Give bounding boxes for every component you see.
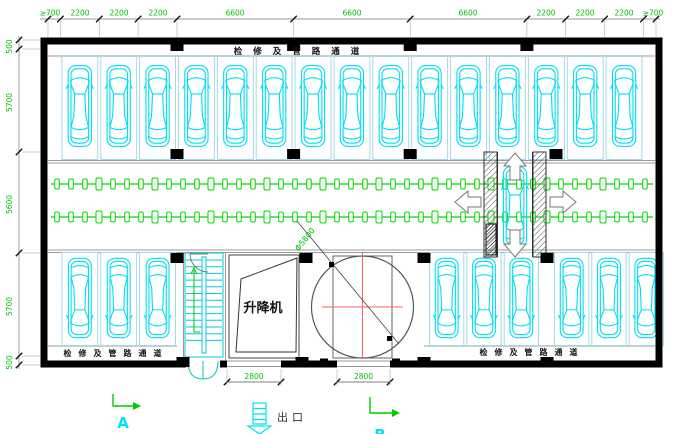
dimension-label: ≥700 bbox=[40, 9, 61, 18]
conveyor-roller-icon bbox=[320, 178, 326, 190]
conveyor-roller-icon bbox=[111, 212, 116, 222]
conveyor-roller-icon bbox=[264, 178, 270, 190]
conveyor-roller-icon bbox=[139, 212, 144, 222]
car-icon bbox=[455, 66, 482, 147]
conveyor-roller-icon bbox=[447, 179, 452, 189]
car-icon bbox=[144, 258, 170, 337]
floor-plan-canvas: ≥700220022002200660066006600220022002200… bbox=[0, 0, 700, 434]
car-icon bbox=[572, 66, 599, 147]
conveyor-roller-icon bbox=[405, 212, 410, 222]
conveyor-roller-icon bbox=[83, 212, 88, 222]
conveyor-roller-icon bbox=[475, 212, 480, 222]
corridor-label-top: 检修及管路通道 bbox=[234, 46, 371, 57]
conveyor-roller-icon bbox=[376, 178, 382, 190]
dimension-label: 5700 bbox=[5, 297, 14, 316]
conveyor-roller-icon bbox=[349, 179, 354, 189]
car-icon bbox=[300, 66, 327, 147]
column bbox=[541, 357, 554, 367]
exit-label: 出口 bbox=[277, 410, 307, 424]
conveyor-roller-icon bbox=[432, 211, 438, 223]
dimension-label: 2800 bbox=[354, 372, 373, 381]
dimension-label: 500 bbox=[5, 39, 14, 54]
dimension-label: ≥700 bbox=[643, 9, 664, 18]
parking-stall bbox=[62, 253, 98, 346]
conveyor-roller-icon bbox=[125, 179, 130, 189]
car-icon bbox=[105, 66, 132, 147]
corridor-label-bottom-left: 检修及管路通道 bbox=[64, 348, 169, 358]
parking-stall bbox=[334, 57, 370, 160]
car-icon bbox=[261, 66, 288, 147]
column bbox=[520, 41, 533, 51]
car-icon bbox=[144, 66, 171, 147]
conveyor-roller-icon bbox=[279, 212, 284, 222]
conveyor-roller-icon bbox=[111, 179, 116, 189]
parking-stall bbox=[179, 57, 215, 160]
conveyor-roller-icon bbox=[96, 178, 102, 190]
car-icon bbox=[222, 66, 249, 147]
dimension-label: 2800 bbox=[244, 372, 263, 381]
parking-stall bbox=[567, 57, 603, 160]
car-lift-shaft bbox=[455, 152, 576, 257]
column bbox=[320, 359, 328, 366]
conveyor-roller-icon bbox=[419, 212, 424, 222]
dimension-label: 2200 bbox=[536, 9, 555, 18]
conveyor-roller-icon bbox=[643, 212, 648, 222]
parking-stall bbox=[62, 57, 98, 160]
exit-icon bbox=[248, 403, 271, 434]
conveyor-roller-icon bbox=[391, 212, 396, 222]
conveyor-roller-icon bbox=[55, 212, 60, 222]
conveyor-roller-icon bbox=[600, 211, 606, 223]
dimension-label: 2200 bbox=[70, 9, 89, 18]
conveyor-roller-icon bbox=[139, 179, 144, 189]
car-icon bbox=[416, 66, 443, 147]
dimension-label: 6600 bbox=[458, 9, 477, 18]
dimension-label: 500 bbox=[5, 355, 14, 370]
conveyor-roller-icon bbox=[293, 179, 298, 189]
section-arrow-a-icon bbox=[113, 394, 141, 410]
column bbox=[171, 253, 184, 263]
dimension-label: 5700 bbox=[5, 93, 14, 112]
column bbox=[392, 359, 400, 366]
column bbox=[418, 253, 431, 263]
conveyor-roller-icon bbox=[307, 179, 312, 189]
column bbox=[171, 41, 184, 51]
parking-stall bbox=[295, 57, 331, 160]
conveyor-roller-icon bbox=[251, 212, 256, 222]
parking-stall bbox=[373, 57, 409, 160]
parking-stall bbox=[140, 57, 176, 160]
dimension-label: 6600 bbox=[342, 9, 361, 18]
column bbox=[177, 357, 190, 367]
car-icon bbox=[558, 258, 584, 337]
car-icon bbox=[67, 258, 93, 337]
conveyor-roller-icon bbox=[223, 179, 228, 189]
car-icon bbox=[508, 258, 534, 337]
conveyor-roller-icon bbox=[181, 212, 186, 222]
conveyor-roller-icon bbox=[600, 178, 606, 190]
parking-stall bbox=[451, 57, 487, 160]
conveyor-roller-icon bbox=[195, 212, 200, 222]
column bbox=[300, 253, 313, 263]
parking-stall bbox=[606, 57, 642, 160]
parking-stall bbox=[489, 57, 525, 160]
section-mark-a: A bbox=[117, 414, 129, 432]
dimension-label: 2200 bbox=[148, 9, 167, 18]
conveyor-roller-icon bbox=[307, 212, 312, 222]
column bbox=[418, 357, 431, 367]
car-icon bbox=[377, 66, 404, 147]
conveyor-roller-icon bbox=[391, 179, 396, 189]
transfer-arrow-icons bbox=[455, 153, 576, 257]
conveyor-roller-icon bbox=[83, 179, 88, 189]
conveyor-roller-icon bbox=[363, 212, 368, 222]
column bbox=[541, 253, 554, 263]
conveyor-roller-icon bbox=[320, 211, 326, 223]
staircase bbox=[185, 253, 223, 357]
conveyor-roller-icon bbox=[251, 179, 256, 189]
car-icon bbox=[611, 66, 638, 147]
conveyor-roller-icon bbox=[335, 212, 340, 222]
lift-room-label: 升降机 bbox=[243, 300, 282, 316]
conveyor-roller-icon bbox=[195, 179, 200, 189]
conveyor-roller-icon bbox=[167, 212, 172, 222]
dimension-label: 2200 bbox=[109, 9, 128, 18]
dimension-label: 2200 bbox=[614, 9, 633, 18]
conveyor-roller-icon bbox=[587, 212, 592, 222]
conveyor-roller-icon bbox=[349, 212, 354, 222]
conveyor-roller-icon bbox=[615, 179, 620, 189]
conveyor-roller-icon bbox=[237, 179, 242, 189]
conveyor-roller-icon bbox=[405, 179, 410, 189]
car-icon bbox=[596, 258, 622, 337]
section-mark-b: B bbox=[374, 426, 385, 434]
conveyor-roller-icon bbox=[125, 212, 130, 222]
conveyor-roller-icon bbox=[615, 212, 620, 222]
column bbox=[171, 149, 184, 159]
column bbox=[296, 357, 309, 367]
conveyor-roller-icon bbox=[293, 212, 298, 222]
column bbox=[404, 41, 417, 51]
dimension-label: 5600 bbox=[5, 195, 14, 214]
conveyor-roller-icon bbox=[96, 211, 102, 223]
conveyor-roller-icon bbox=[152, 211, 158, 223]
conveyor-roller-icon bbox=[335, 179, 340, 189]
conveyor-roller-icon bbox=[475, 179, 480, 189]
parking-stall bbox=[140, 253, 176, 346]
conveyor-roller-icon bbox=[559, 179, 564, 189]
column bbox=[550, 149, 563, 159]
conveyor-roller-icon bbox=[376, 211, 382, 223]
car-icon bbox=[105, 258, 131, 337]
conveyor-roller-icon bbox=[573, 179, 578, 189]
parking-stall bbox=[412, 57, 448, 160]
car-icon bbox=[183, 66, 210, 147]
parking-stall bbox=[256, 57, 292, 160]
conveyor-roller-icon bbox=[419, 179, 424, 189]
conveyor-roller-icon bbox=[264, 211, 270, 223]
parking-stall bbox=[101, 253, 137, 346]
conveyor-roller-icon bbox=[167, 179, 172, 189]
floor-plan-svg: ≥700220022002200660066006600220022002200… bbox=[0, 0, 700, 434]
conveyor-roller-icon bbox=[573, 212, 578, 222]
parking-stall bbox=[528, 57, 564, 160]
column bbox=[404, 149, 417, 159]
conveyor-roller-icon bbox=[461, 212, 466, 222]
dimension-label: 6600 bbox=[225, 9, 244, 18]
conveyor-roller-icon bbox=[69, 179, 74, 189]
corridor-label-bottom-right: 检修及管路通道 bbox=[480, 347, 585, 357]
conveyor-roller-icon bbox=[152, 178, 158, 190]
car-icon bbox=[471, 258, 497, 337]
conveyor-roller-icon bbox=[237, 212, 242, 222]
section-arrow-b-icon bbox=[370, 397, 400, 417]
conveyor-roller-icon bbox=[363, 179, 368, 189]
car-icon bbox=[338, 66, 365, 147]
conveyor-roller-icon bbox=[629, 179, 634, 189]
conveyor-roller-icon bbox=[587, 179, 592, 189]
conveyor-roller-icon bbox=[629, 212, 634, 222]
conveyor-roller-icon bbox=[461, 179, 466, 189]
conveyor-roller-icon bbox=[432, 178, 438, 190]
conveyor-roller-icon bbox=[279, 179, 284, 189]
parking-stall bbox=[101, 57, 137, 160]
conveyor-roller-icon bbox=[69, 212, 74, 222]
conveyor-roller-icon bbox=[223, 212, 228, 222]
conveyor-roller-icon bbox=[208, 178, 214, 190]
column bbox=[287, 149, 300, 159]
turntable bbox=[297, 221, 414, 361]
car-icon bbox=[533, 66, 560, 147]
turntable-crosshair bbox=[322, 253, 403, 361]
car-icon bbox=[66, 66, 93, 147]
conveyor-roller-icon bbox=[447, 212, 452, 222]
conveyor-roller-icon bbox=[208, 211, 214, 223]
car-icon bbox=[494, 66, 521, 147]
conveyor-roller-icon bbox=[181, 179, 186, 189]
conveyor-roller-icon bbox=[55, 179, 60, 189]
dimension-label: 2200 bbox=[575, 9, 594, 18]
car-icon bbox=[433, 258, 459, 337]
parking-stall bbox=[217, 57, 253, 160]
conveyor-roller-icon bbox=[643, 179, 648, 189]
